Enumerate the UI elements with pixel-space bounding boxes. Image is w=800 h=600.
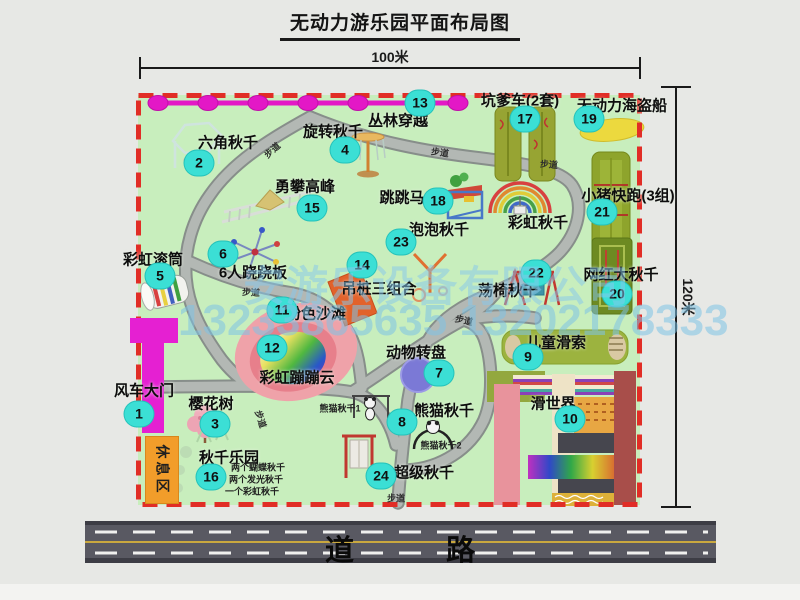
attraction-label: 熊猫秋千 <box>414 400 474 421</box>
attraction-number-badge: 1 <box>124 401 155 428</box>
road-label: 道 路 <box>283 527 517 569</box>
attraction-number-badge: 18 <box>423 188 454 215</box>
walkway-label: 步道 <box>242 285 261 299</box>
slide-world-icon <box>487 371 636 506</box>
height-dimension-label: 120米 <box>678 278 698 315</box>
attraction-number-badge: 17 <box>510 106 541 133</box>
attraction-number-badge: 24 <box>366 463 397 490</box>
sub-label: 一个彩虹秋千 <box>225 485 279 498</box>
page-title: 无动力游乐园平面布局图 <box>280 8 520 41</box>
attraction-number-badge: 3 <box>200 411 231 438</box>
attraction-label: 跳跳马 <box>379 187 424 208</box>
sub-label: 熊猫秋千2 <box>420 439 461 452</box>
attraction-number-badge: 21 <box>587 199 618 226</box>
attraction-label: 彩虹蹦蹦云 <box>259 367 334 388</box>
attraction-number-badge: 22 <box>521 260 552 287</box>
attraction-label: 泡泡秋千 <box>409 219 469 240</box>
attraction-number-badge: 4 <box>330 137 361 164</box>
attraction-label: 六角秋千 <box>198 132 258 153</box>
walkway-label: 步道 <box>539 157 558 172</box>
walkway-label: 步道 <box>387 492 405 505</box>
attraction-number-badge: 19 <box>574 106 605 133</box>
attraction-label: 超级秋千 <box>394 462 454 483</box>
walkway-label: 步道 <box>430 144 450 159</box>
attraction-number-badge: 13 <box>405 90 436 117</box>
sub-label: 熊猫秋千1 <box>319 402 360 415</box>
attraction-number-badge: 2 <box>184 150 215 177</box>
rest-area-label: 休息区 <box>152 445 172 496</box>
attraction-number-badge: 10 <box>555 406 586 433</box>
attraction-number-badge: 15 <box>297 195 328 222</box>
park-layout-map: 无动力游乐园平面布局图 100米 120米 道 路 休息区 安游乐设备有限公司 … <box>0 0 800 600</box>
attraction-number-badge: 5 <box>145 263 176 290</box>
attraction-number-badge: 20 <box>602 281 633 308</box>
attraction-number-badge: 12 <box>257 335 288 362</box>
attraction-number-badge: 7 <box>424 360 455 387</box>
attraction-number-badge: 11 <box>267 297 298 324</box>
attraction-number-badge: 6 <box>208 241 239 268</box>
attraction-label: 彩虹秋千 <box>508 212 568 233</box>
attraction-number-badge: 9 <box>513 344 544 371</box>
rest-area: 休息区 <box>145 436 179 504</box>
attraction-number-badge: 16 <box>196 464 227 491</box>
attraction-label: 吊桩三组合 <box>341 278 416 299</box>
attraction-label: 勇攀高峰 <box>275 176 335 197</box>
attraction-label: 风车大门 <box>114 380 174 401</box>
attraction-number-badge: 23 <box>386 229 417 256</box>
attraction-number-badge: 14 <box>347 252 378 279</box>
width-dimension-label: 100米 <box>371 47 408 67</box>
attraction-number-badge: 8 <box>387 409 418 436</box>
